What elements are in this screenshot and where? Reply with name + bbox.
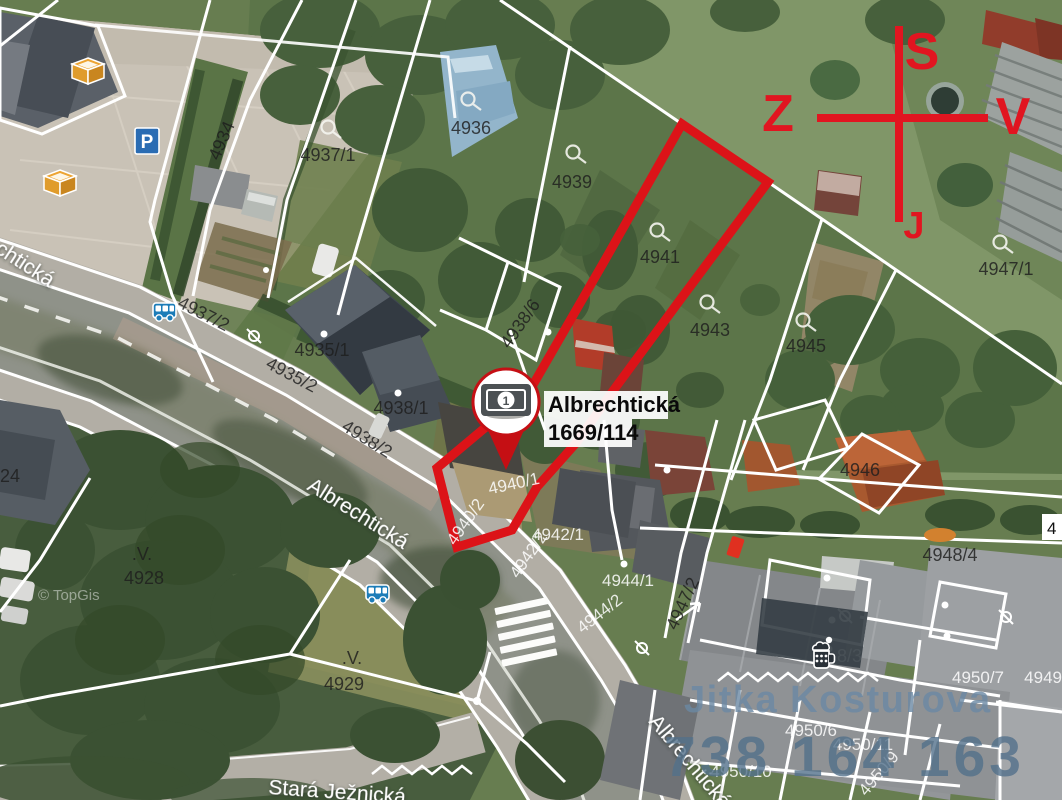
svg-text:738 164 163: 738 164 163 <box>664 725 1025 789</box>
svg-text:.V.: .V. <box>342 648 362 668</box>
svg-text:1: 1 <box>503 394 510 408</box>
svg-text:4948/4: 4948/4 <box>922 545 977 565</box>
svg-text:S: S <box>905 23 940 81</box>
svg-text:4928: 4928 <box>124 568 164 588</box>
svg-text:P: P <box>141 132 154 153</box>
svg-text:4929: 4929 <box>324 674 364 694</box>
svg-text:4943: 4943 <box>690 320 730 340</box>
svg-text:V: V <box>996 88 1031 146</box>
svg-text:4936: 4936 <box>451 118 491 138</box>
svg-text:4946: 4946 <box>840 460 880 480</box>
svg-text:4: 4 <box>1047 519 1056 538</box>
svg-text:4942/1: 4942/1 <box>532 525 584 544</box>
svg-text:4947/1: 4947/1 <box>978 259 1033 279</box>
svg-text:© TopGis: © TopGis <box>38 587 100 604</box>
svg-text:1669/114: 1669/114 <box>548 420 639 445</box>
svg-text:4939: 4939 <box>552 172 592 192</box>
svg-text:4941: 4941 <box>640 247 680 267</box>
svg-text:4945: 4945 <box>786 336 826 356</box>
svg-text:4949: 4949 <box>1024 668 1062 687</box>
svg-text:4944/1: 4944/1 <box>602 571 654 590</box>
svg-text:24: 24 <box>0 466 20 486</box>
svg-text:.V.: .V. <box>132 544 152 564</box>
svg-text:Jitka Kosturova: Jitka Kosturova <box>684 679 992 721</box>
svg-text:4935/1: 4935/1 <box>294 340 349 360</box>
svg-text:Z: Z <box>762 85 794 143</box>
svg-text:Albrechtická: Albrechtická <box>548 392 681 417</box>
svg-text:J: J <box>903 205 924 247</box>
svg-text:4937/1: 4937/1 <box>300 145 355 165</box>
